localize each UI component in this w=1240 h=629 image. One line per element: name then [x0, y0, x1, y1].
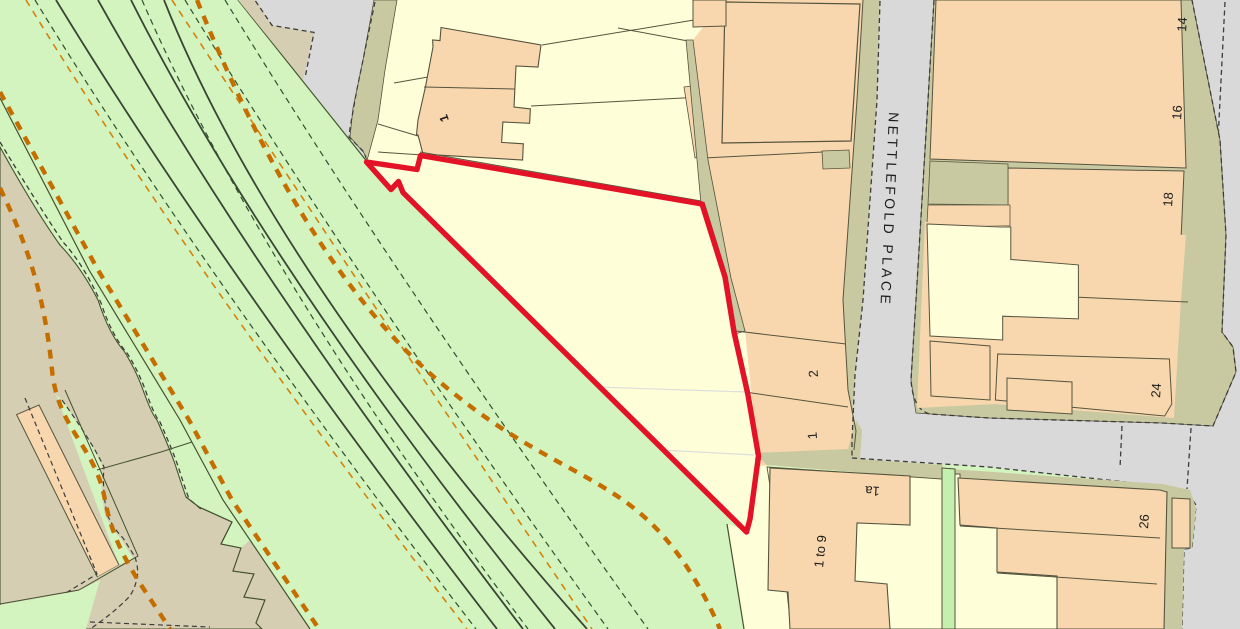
svg-text:24: 24 [1148, 383, 1164, 398]
svg-text:16: 16 [1169, 105, 1185, 120]
svg-text:14: 14 [1174, 17, 1190, 32]
svg-text:2: 2 [806, 370, 821, 378]
svg-text:1a: 1a [864, 483, 880, 499]
svg-text:26: 26 [1136, 514, 1152, 529]
svg-text:1: 1 [805, 432, 820, 440]
svg-text:18: 18 [1160, 192, 1176, 207]
